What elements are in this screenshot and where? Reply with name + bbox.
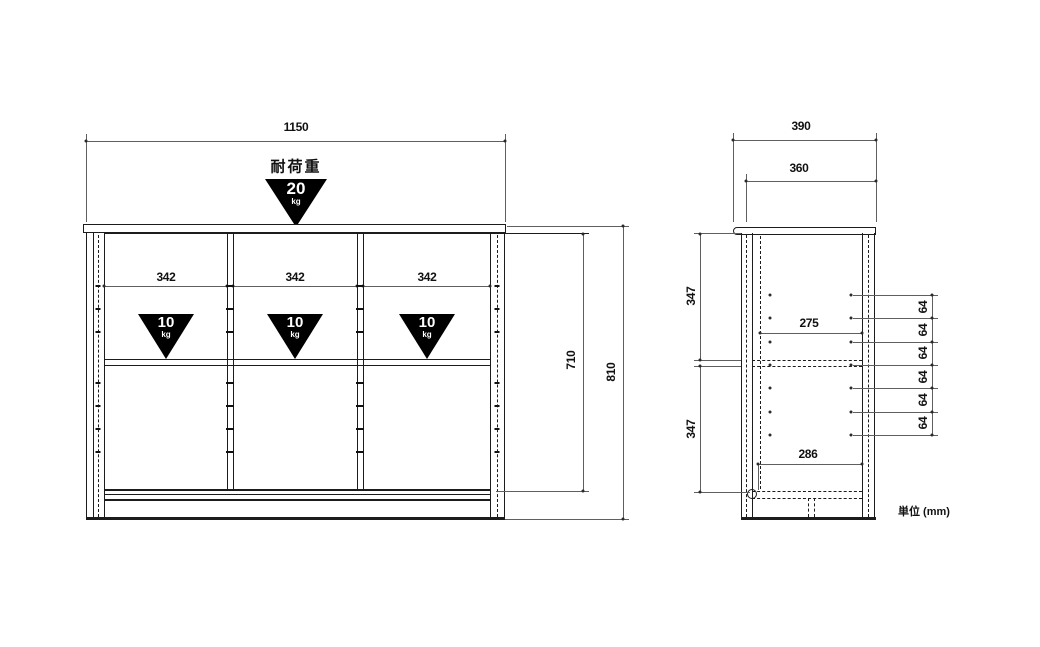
dim-endpoint	[699, 233, 702, 236]
load-unit: kg	[161, 331, 170, 339]
side-back-wall-holes-hidden	[868, 235, 869, 517]
dim-line-lower-depth	[758, 464, 862, 465]
dim-label-section-1: 342	[156, 270, 175, 284]
dim-endpoint	[757, 463, 760, 466]
dim-endpoint	[931, 434, 934, 437]
pin-tick	[356, 285, 364, 287]
dim-endpoint	[582, 490, 585, 493]
dim-extension-line	[694, 492, 750, 493]
dim-line-lower-height	[700, 366, 701, 492]
front-top-board	[83, 224, 506, 233]
dim-endpoint	[931, 387, 934, 390]
pin-hole-dot	[769, 340, 772, 343]
pin-tick	[96, 285, 101, 287]
dim-line-upper-depth	[760, 333, 862, 334]
pin-tick	[96, 428, 101, 430]
pin-tick	[226, 405, 234, 407]
front-left-wall-holes-hidden	[98, 235, 99, 517]
dim-endpoint	[875, 139, 878, 142]
pin-pitch-extension-line	[853, 365, 938, 366]
dim-extension-line	[507, 226, 629, 227]
pin-tick	[495, 405, 500, 407]
pin-tick	[96, 331, 101, 333]
dim-endpoint	[931, 364, 934, 367]
dim-label-pin-pitch-2: 64	[916, 324, 930, 337]
dim-line-overall-depth	[733, 140, 876, 141]
dim-endpoint	[861, 332, 864, 335]
dim-line-overall-height	[623, 226, 624, 519]
pin-pitch-extension-line	[853, 435, 938, 436]
dim-label-pin-pitch-1: 64	[916, 301, 930, 314]
pin-pitch-extension-line	[853, 412, 938, 413]
dim-endpoint	[85, 140, 88, 143]
dim-label-section-2: 342	[285, 270, 304, 284]
pin-tick	[96, 382, 101, 384]
pin-hole-dot	[769, 434, 772, 437]
dim-label-top-depth: 360	[789, 161, 808, 175]
pin-hole-dot	[769, 294, 772, 297]
pin-tick	[226, 382, 234, 384]
front-left-wall-inner	[104, 233, 105, 519]
dim-label-overall-height: 810	[604, 362, 618, 381]
dim-endpoint	[622, 518, 625, 521]
dim-label-pin-pitch-5: 64	[916, 394, 930, 407]
pin-tick	[96, 451, 101, 453]
front-left-wall-line	[93, 233, 94, 519]
pin-tick	[226, 331, 234, 333]
load-unit: kg	[290, 331, 299, 339]
side-bottom-board-hidden	[752, 491, 862, 492]
dim-extension-line	[876, 133, 877, 222]
dim-extension-line	[86, 134, 87, 222]
load-unit: kg	[422, 331, 431, 339]
dim-endpoint	[489, 285, 492, 288]
side-front-wall-inner	[752, 233, 753, 519]
side-middle-support-hidden	[808, 498, 809, 517]
front-right-wall-inner	[490, 233, 491, 519]
load-value: 10	[158, 315, 175, 331]
dim-label-lower-depth: 286	[798, 447, 817, 461]
pin-tick	[96, 405, 101, 407]
dim-endpoint	[745, 180, 748, 183]
side-front-wall-outer	[741, 233, 742, 519]
dim-endpoint	[699, 365, 702, 368]
furniture-dimension-drawing: 1150 耐荷重 20 kg 342 342 342 10 kg 10	[0, 0, 1040, 647]
side-front-wall-holes-hidden	[746, 235, 747, 517]
side-bottom-board-hidden	[752, 498, 862, 499]
dim-label-overall-depth: 390	[791, 119, 810, 133]
front-right-wall-outer	[504, 232, 505, 520]
dim-endpoint	[504, 140, 507, 143]
dim-line-interior-height	[583, 233, 584, 491]
pin-pitch-extension-line	[853, 342, 938, 343]
dim-endpoint	[699, 491, 702, 494]
front-left-wall-outer	[86, 232, 87, 520]
dim-endpoint	[622, 225, 625, 228]
dim-label-pin-pitch-3: 64	[916, 347, 930, 360]
dim-extension-line	[505, 134, 506, 222]
pin-tick	[495, 428, 500, 430]
front-middle-shelf	[104, 359, 490, 360]
load-badge-top-20kg: 20 kg	[265, 179, 327, 227]
side-back-wall-outer	[874, 233, 875, 519]
load-value: 10	[287, 315, 304, 331]
side-top-board	[733, 227, 876, 235]
dim-label-pin-pitch-6: 64	[916, 417, 930, 430]
pin-tick	[226, 451, 234, 453]
pin-tick	[495, 382, 500, 384]
side-middle-support-hidden	[814, 498, 815, 517]
load-badge-shelf-1: 10 kg	[138, 314, 194, 359]
pin-tick	[356, 428, 364, 430]
load-capacity-heading: 耐荷重	[270, 156, 321, 177]
pin-tick	[226, 308, 234, 310]
dim-line-overall-width	[86, 141, 505, 142]
dim-endpoint	[759, 332, 762, 335]
dim-label-upper-depth: 275	[799, 316, 818, 330]
pin-pitch-extension-line	[853, 388, 938, 389]
pin-tick	[356, 451, 364, 453]
pin-tick	[96, 308, 101, 310]
dim-line-upper-height	[700, 233, 701, 360]
load-value: 10	[419, 315, 436, 331]
front-bottom-board-line	[104, 494, 490, 495]
side-front-frame-hidden-edge	[760, 236, 761, 489]
side-back-wall-inner	[862, 233, 863, 519]
dim-endpoint	[931, 294, 934, 297]
pin-hole-dot	[769, 364, 772, 367]
front-middle-shelf	[104, 365, 490, 366]
dim-endpoint	[861, 463, 864, 466]
dim-label-interior-height: 710	[564, 350, 578, 369]
dim-extension-line	[758, 464, 759, 490]
load-badge-shelf-3: 10 kg	[399, 314, 455, 359]
dim-label-upper-height: 347	[684, 286, 698, 305]
dim-endpoint	[931, 340, 934, 343]
dim-line-section-1	[104, 286, 227, 287]
dim-label-pin-pitch-4: 64	[916, 371, 930, 384]
pin-tick	[356, 382, 364, 384]
pin-tick	[356, 308, 364, 310]
load-unit: kg	[291, 198, 300, 206]
load-value: 20	[287, 180, 306, 198]
dim-endpoint	[103, 285, 106, 288]
unit-note: 単位 (mm)	[898, 503, 950, 519]
dim-line-top-depth	[746, 181, 876, 182]
pin-tick	[495, 451, 500, 453]
pin-tick	[495, 308, 500, 310]
load-badge-shelf-2: 10 kg	[267, 314, 323, 359]
dim-endpoint	[732, 139, 735, 142]
front-right-wall-holes-hidden	[497, 235, 498, 517]
side-bottom-board-round-nose	[747, 489, 757, 499]
side-base-line	[741, 517, 876, 520]
pin-tick	[495, 331, 500, 333]
dim-line-section-2	[233, 286, 357, 287]
dim-endpoint	[931, 410, 934, 413]
pin-hole-dot	[769, 410, 772, 413]
pin-hole-dot	[769, 387, 772, 390]
pin-tick	[226, 285, 234, 287]
pin-tick	[226, 428, 234, 430]
front-interior-top-line	[104, 233, 589, 234]
pin-tick	[356, 331, 364, 333]
dim-label-lower-height: 347	[684, 419, 698, 438]
dim-endpoint	[875, 180, 878, 183]
dim-endpoint	[699, 359, 702, 362]
dim-label-section-3: 342	[417, 270, 436, 284]
pin-pitch-extension-line	[853, 295, 938, 296]
dim-extension-line	[496, 491, 589, 492]
front-bottom-rail	[104, 499, 490, 501]
pin-hole-dot	[769, 317, 772, 320]
pin-tick	[495, 285, 500, 287]
pin-tick	[356, 405, 364, 407]
dim-extension-line	[733, 133, 734, 222]
side-middle-shelf-hidden	[752, 360, 862, 361]
dim-endpoint	[582, 233, 585, 236]
front-base-line	[86, 517, 505, 520]
dim-label-overall-width: 1150	[284, 120, 309, 134]
pin-pitch-extension-line	[853, 318, 938, 319]
dim-extension-line	[505, 519, 629, 520]
dim-endpoint	[931, 317, 934, 320]
front-bottom-board	[104, 489, 490, 491]
dim-line-section-3	[363, 286, 490, 287]
